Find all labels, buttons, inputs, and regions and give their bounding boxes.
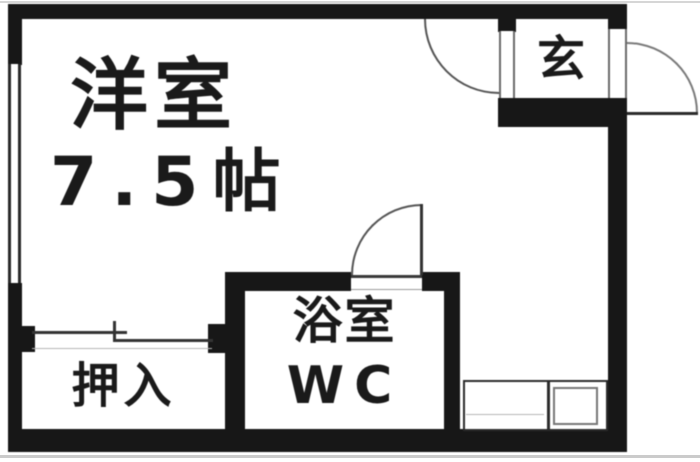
counter-detail-line (466, 414, 544, 415)
bathroom-label: 浴室 (245, 295, 444, 348)
closet-wall-stub-left (8, 326, 35, 352)
window-left (8, 64, 21, 284)
floorplan-image: 洋室 7.5帖 玄 押入 浴室 WC (0, 0, 700, 462)
entrance-label: 玄 (515, 34, 607, 84)
wall-left-upper (8, 4, 22, 65)
sliding-door-track-line (32, 348, 212, 349)
bathroom-wall-right (444, 272, 460, 452)
wall-right-upper (608, 4, 627, 31)
front-door-swing-arc (627, 42, 698, 113)
entrance-inner-door-opening (499, 31, 515, 98)
closet-label: 押入 (22, 361, 225, 411)
floorplan-drawing: 洋室 7.5帖 玄 押入 浴室 WC (0, 0, 700, 462)
sliding-door-overlap-tick (113, 321, 116, 342)
wall-right-main (608, 98, 627, 452)
bathroom-wall-left (225, 272, 245, 452)
main-room-label: 洋室 (70, 56, 238, 138)
bathroom-door-swing-arc (351, 204, 422, 275)
sink (553, 387, 598, 425)
entrance-inner-door-swing-arc (424, 19, 499, 94)
bathroom-wall-top-left (225, 272, 351, 291)
wall-left-lower (8, 283, 22, 452)
bathroom-door-threshold (351, 275, 422, 290)
counter-division-line (547, 380, 550, 431)
bathroom-wc-label: WC (245, 359, 444, 414)
bathroom-door-leaf (420, 204, 423, 275)
front-door-leaf (627, 112, 698, 115)
main-room-size-label: 7.5帖 (50, 147, 294, 218)
wall-bottom (8, 429, 627, 452)
sliding-door-line-2 (113, 339, 213, 342)
wall-top (8, 4, 627, 19)
front-door-opening (608, 29, 627, 100)
entrance-bottom-wall (498, 98, 627, 127)
